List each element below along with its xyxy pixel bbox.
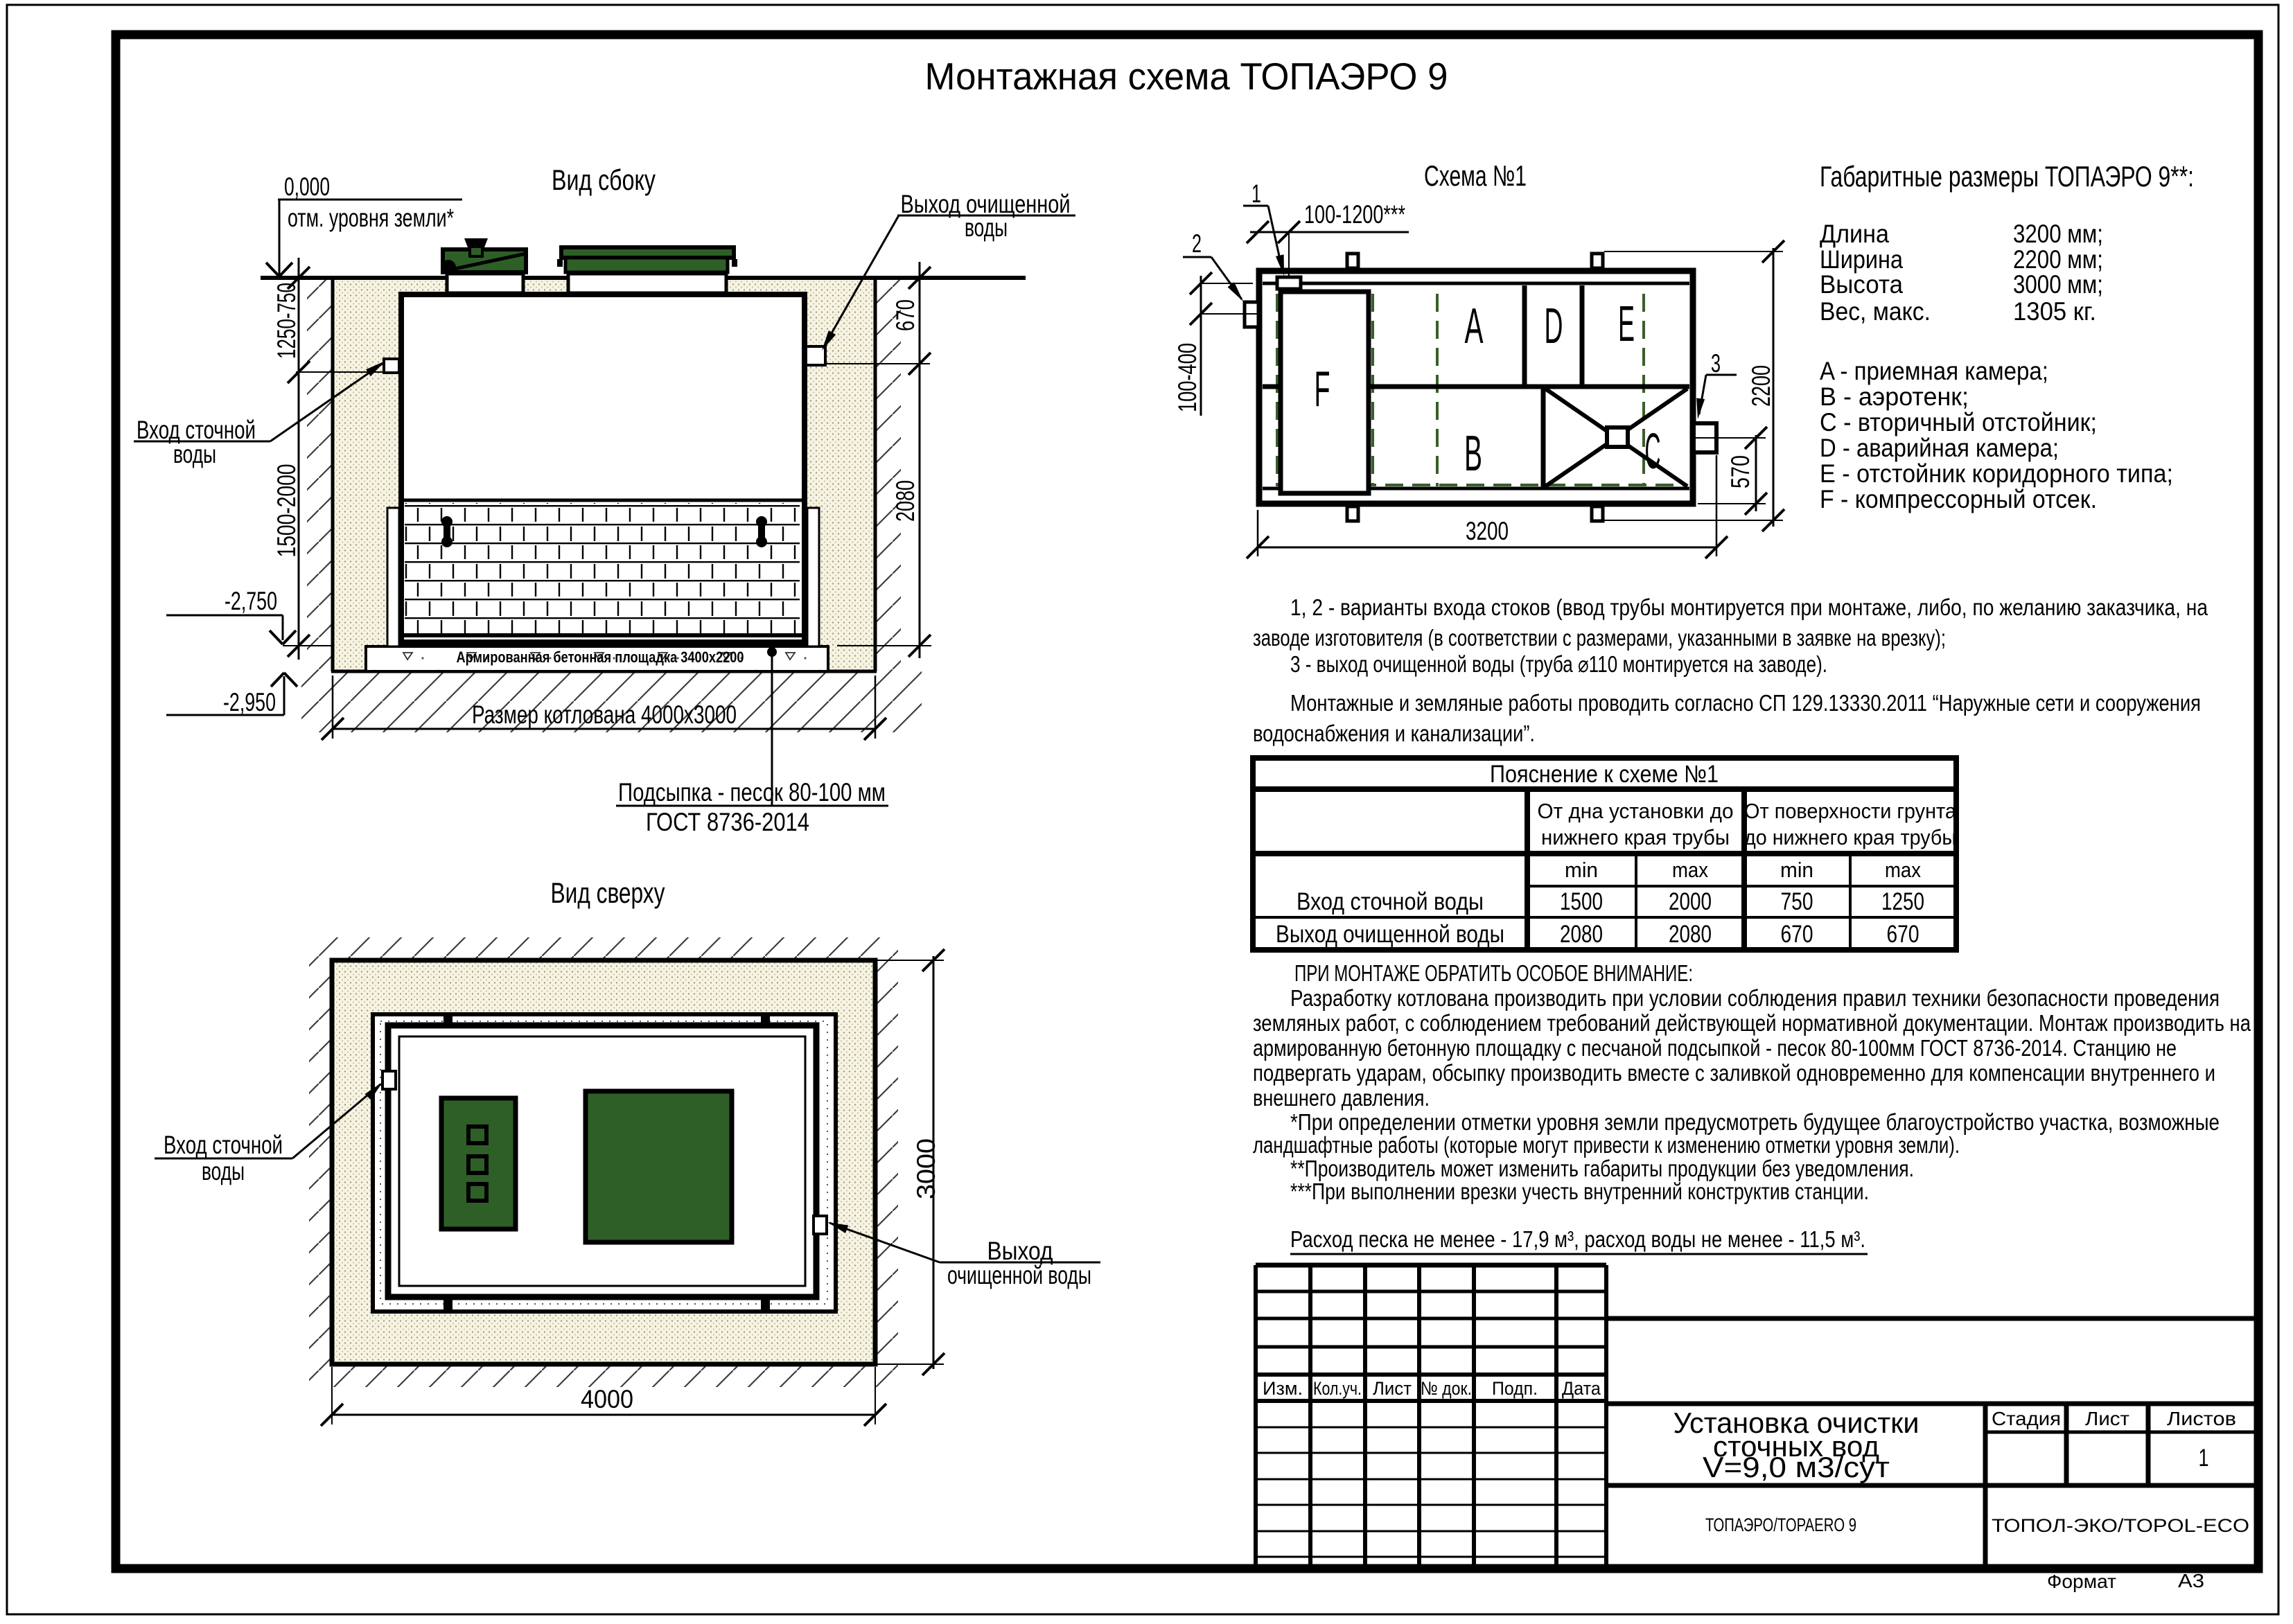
svg-text:3200 мм;: 3200 мм; xyxy=(2013,220,2103,248)
svg-text:4000: 4000 xyxy=(581,1385,633,1413)
svg-text:**Производитель может изменить: **Производитель может изменить габариты … xyxy=(1290,1156,1914,1181)
svg-text:3 - выход очищенной воды (труб: 3 - выход очищенной воды (труба ⌀110 мон… xyxy=(1290,651,1827,677)
svg-text:до нижнего края трубы: до нижнего края трубы xyxy=(1744,825,1956,849)
svg-text:водоснабжения и канализации”.: водоснабжения и канализации”. xyxy=(1253,721,1535,746)
svg-text:ландшафтные работы (которые мо: ландшафтные работы (которые могут привес… xyxy=(1253,1132,1960,1158)
svg-text:1500-2000: 1500-2000 xyxy=(272,464,301,558)
svg-text:Вид сверху: Вид сверху xyxy=(551,876,665,909)
svg-text:-2,750: -2,750 xyxy=(225,587,277,615)
svg-text:670: 670 xyxy=(1781,921,1813,948)
svg-text:0,000: 0,000 xyxy=(284,173,330,201)
svg-text:2200 мм;: 2200 мм; xyxy=(2013,245,2103,274)
svg-text:Вход сточной воды: Вход сточной воды xyxy=(1297,888,1484,915)
svg-text:Ширина: Ширина xyxy=(1820,245,1903,274)
svg-text:армированную бетонную площадку: армированную бетонную площадку с песчано… xyxy=(1253,1035,2177,1061)
svg-text:Дата: Дата xyxy=(1562,1378,1601,1399)
svg-text:3000: 3000 xyxy=(912,1138,940,1199)
svg-text:2000: 2000 xyxy=(1669,888,1712,915)
svg-text:F: F xyxy=(1315,362,1330,417)
svg-text:Размер котлована 4000х3000: Размер котлована 4000х3000 xyxy=(472,700,737,729)
svg-text:750: 750 xyxy=(1781,888,1813,915)
svg-text:земляных работ, с соблюдением: земляных работ, с соблюдением требований… xyxy=(1253,1010,2251,1036)
svg-text:B - аэротенк;: B - аэротенк; xyxy=(1820,382,1969,411)
svg-text:100-400: 100-400 xyxy=(1173,343,1202,412)
svg-text:D - аварийная камера;: D - аварийная камера; xyxy=(1820,434,2059,462)
svg-text:min: min xyxy=(1565,858,1598,882)
svg-text:Габаритные размеры ТОПАЭРО 9**: Габаритные размеры ТОПАЭРО 9**: xyxy=(1820,160,2194,193)
svg-text:min: min xyxy=(1780,858,1813,882)
svg-text:1: 1 xyxy=(1251,179,1261,208)
svg-text:ГОСТ 8736-2014: ГОСТ 8736-2014 xyxy=(646,808,809,836)
svg-text:отм. уровня земли*: отм. уровня земли* xyxy=(288,204,454,232)
svg-text:ПРИ МОНТАЖЕ ОБРАТИТЬ ОСОБОЕ ВН: ПРИ МОНТАЖЕ ОБРАТИТЬ ОСОБОЕ ВНИМАНИЕ: xyxy=(1294,960,1693,986)
svg-text:Схема №1: Схема №1 xyxy=(1424,159,1527,192)
svg-text:*При определении отметки уровн: *При определении отметки уровня земли пр… xyxy=(1290,1109,2220,1135)
svg-text:Вид сбоку: Вид сбоку xyxy=(552,164,656,196)
svg-text:-2,950: -2,950 xyxy=(223,688,276,716)
svg-text:2080: 2080 xyxy=(891,480,920,522)
svg-text:1250-750: 1250-750 xyxy=(272,283,301,359)
svg-text:3: 3 xyxy=(1711,349,1721,378)
svg-text:Формат: Формат xyxy=(2047,1571,2116,1592)
svg-text:Подсыпка - песок 80-100 мм: Подсыпка - песок 80-100 мм xyxy=(618,778,886,806)
svg-text:Монтажные и земляные работы пр: Монтажные и земляные работы проводить со… xyxy=(1290,690,2201,716)
svg-text:670: 670 xyxy=(891,299,920,331)
svg-text:Монтажная схема ТОПАЭРО 9: Монтажная схема ТОПАЭРО 9 xyxy=(925,55,1448,98)
svg-text:очищенной воды: очищенной воды xyxy=(947,1261,1091,1289)
svg-text:Вход сточной: Вход сточной xyxy=(164,1131,283,1159)
svg-text:2080: 2080 xyxy=(1560,921,1603,948)
svg-text:Лист: Лист xyxy=(2085,1408,2129,1429)
svg-text:1305 кг.: 1305 кг. xyxy=(2013,297,2096,326)
svg-text:A - приемная камера;: A - приемная камера; xyxy=(1820,357,2048,385)
svg-text:нижнего края трубы: нижнего края трубы xyxy=(1541,825,1730,849)
svg-text:воды: воды xyxy=(202,1157,245,1185)
svg-text:1500: 1500 xyxy=(1560,888,1603,915)
svg-text:B: B xyxy=(1464,426,1482,482)
svg-text:A: A xyxy=(1465,299,1484,354)
svg-text:Лист: Лист xyxy=(1373,1378,1412,1399)
svg-text:Армированная бетонная площадка: Армированная бетонная площадка 3400х2200 xyxy=(457,648,744,666)
svg-text:570: 570 xyxy=(1726,455,1755,488)
svg-text:1, 2 - варианты входа стоков: 1, 2 - варианты входа стоков (ввод трубы… xyxy=(1290,594,2208,620)
svg-text:внешнего давления.: внешнего давления. xyxy=(1253,1085,1430,1111)
svg-text:Вес, макс.: Вес, макс. xyxy=(1820,297,1931,326)
svg-text:№ док.: № док. xyxy=(1421,1378,1472,1399)
svg-text:ТОПАЭРО/TOPAERO 9: ТОПАЭРО/TOPAERO 9 xyxy=(1705,1515,1856,1535)
svg-text:подвергать ударам, обсыпку про: подвергать ударам, обсыпку производить в… xyxy=(1253,1060,2215,1086)
svg-text:D: D xyxy=(1545,299,1563,354)
svg-text:2200: 2200 xyxy=(1747,365,1775,407)
svg-text:1250: 1250 xyxy=(1881,888,1924,915)
svg-text:Кол.уч.: Кол.уч. xyxy=(1313,1378,1362,1399)
svg-text:***При выполнении врезки учест: ***При выполнении врезки учесть внутренн… xyxy=(1290,1179,1869,1204)
svg-text:Изм.: Изм. xyxy=(1263,1378,1303,1399)
svg-text:ТОПОЛ-ЭКО/TOPOL-ECO: ТОПОЛ-ЭКО/TOPOL-ECO xyxy=(1992,1515,2249,1536)
svg-text:F - компрессорный отсек.: F - компрессорный отсек. xyxy=(1820,485,2097,513)
svg-text:Разработку котлована производи: Разработку котлована производить при усл… xyxy=(1290,985,2220,1011)
svg-text:Стадия: Стадия xyxy=(1992,1408,2061,1429)
svg-text:V=9,0 м3/сут: V=9,0 м3/сут xyxy=(1703,1451,1890,1483)
svg-text:Выход очищенной воды: Выход очищенной воды xyxy=(1276,921,1504,948)
svg-text:А3: А3 xyxy=(2178,1570,2204,1591)
svg-text:От дна установки до: От дна установки до xyxy=(1538,799,1734,823)
svg-text:C: C xyxy=(1645,424,1661,479)
svg-text:воды: воды xyxy=(965,213,1008,242)
svg-text:3000 мм;: 3000 мм; xyxy=(2013,270,2103,299)
svg-text:C - вторичный отстойник;: C - вторичный отстойник; xyxy=(1820,408,2097,436)
svg-text:Длина: Длина xyxy=(1820,220,1889,248)
svg-text:100-1200***: 100-1200*** xyxy=(1304,200,1405,229)
svg-text:3200: 3200 xyxy=(1466,517,1509,545)
svg-text:E: E xyxy=(1618,297,1635,352)
svg-text:E - отстойник коридорного типа: E - отстойник коридорного типа; xyxy=(1820,459,2173,488)
svg-text:1: 1 xyxy=(2199,1445,2209,1472)
svg-text:От поверхности грунта: От поверхности грунта xyxy=(1744,799,1957,823)
svg-text:воды: воды xyxy=(173,440,216,468)
svg-text:max: max xyxy=(1672,858,1708,882)
svg-text:2080: 2080 xyxy=(1669,921,1712,948)
svg-text:Пояснение к схеме №1: Пояснение к схеме №1 xyxy=(1490,761,1719,788)
svg-text:Расход песка не менее - 17,9 м: Расход песка не менее - 17,9 м³, расход … xyxy=(1290,1226,1865,1252)
svg-text:max: max xyxy=(1885,858,1921,882)
svg-text:Подп.: Подп. xyxy=(1492,1378,1538,1399)
svg-text:заводе изготовителя (в соответ: заводе изготовителя (в соответствии с ра… xyxy=(1253,625,1946,651)
svg-text:Листов: Листов xyxy=(2167,1408,2236,1429)
svg-text:670: 670 xyxy=(1887,921,1919,948)
svg-text:2: 2 xyxy=(1192,229,1202,258)
svg-text:Высота: Высота xyxy=(1820,270,1903,299)
